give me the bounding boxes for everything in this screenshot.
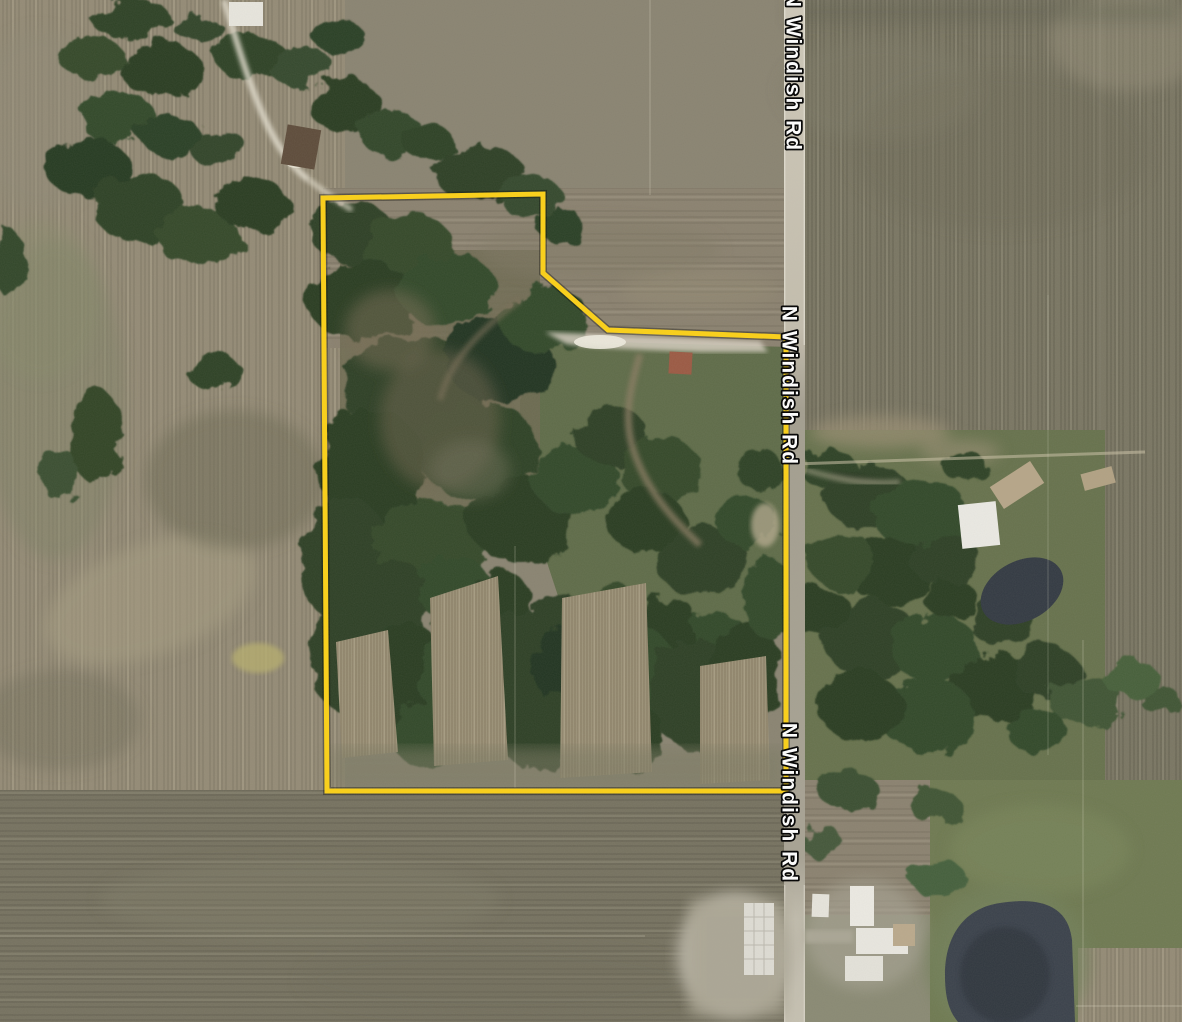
satellite-map[interactable]: N Windish Rd N Windish Rd N Windish Rd <box>0 0 1182 1022</box>
map-canvas[interactable]: N Windish Rd N Windish Rd N Windish Rd <box>0 0 1182 1022</box>
grain-overlay <box>0 0 1182 1022</box>
